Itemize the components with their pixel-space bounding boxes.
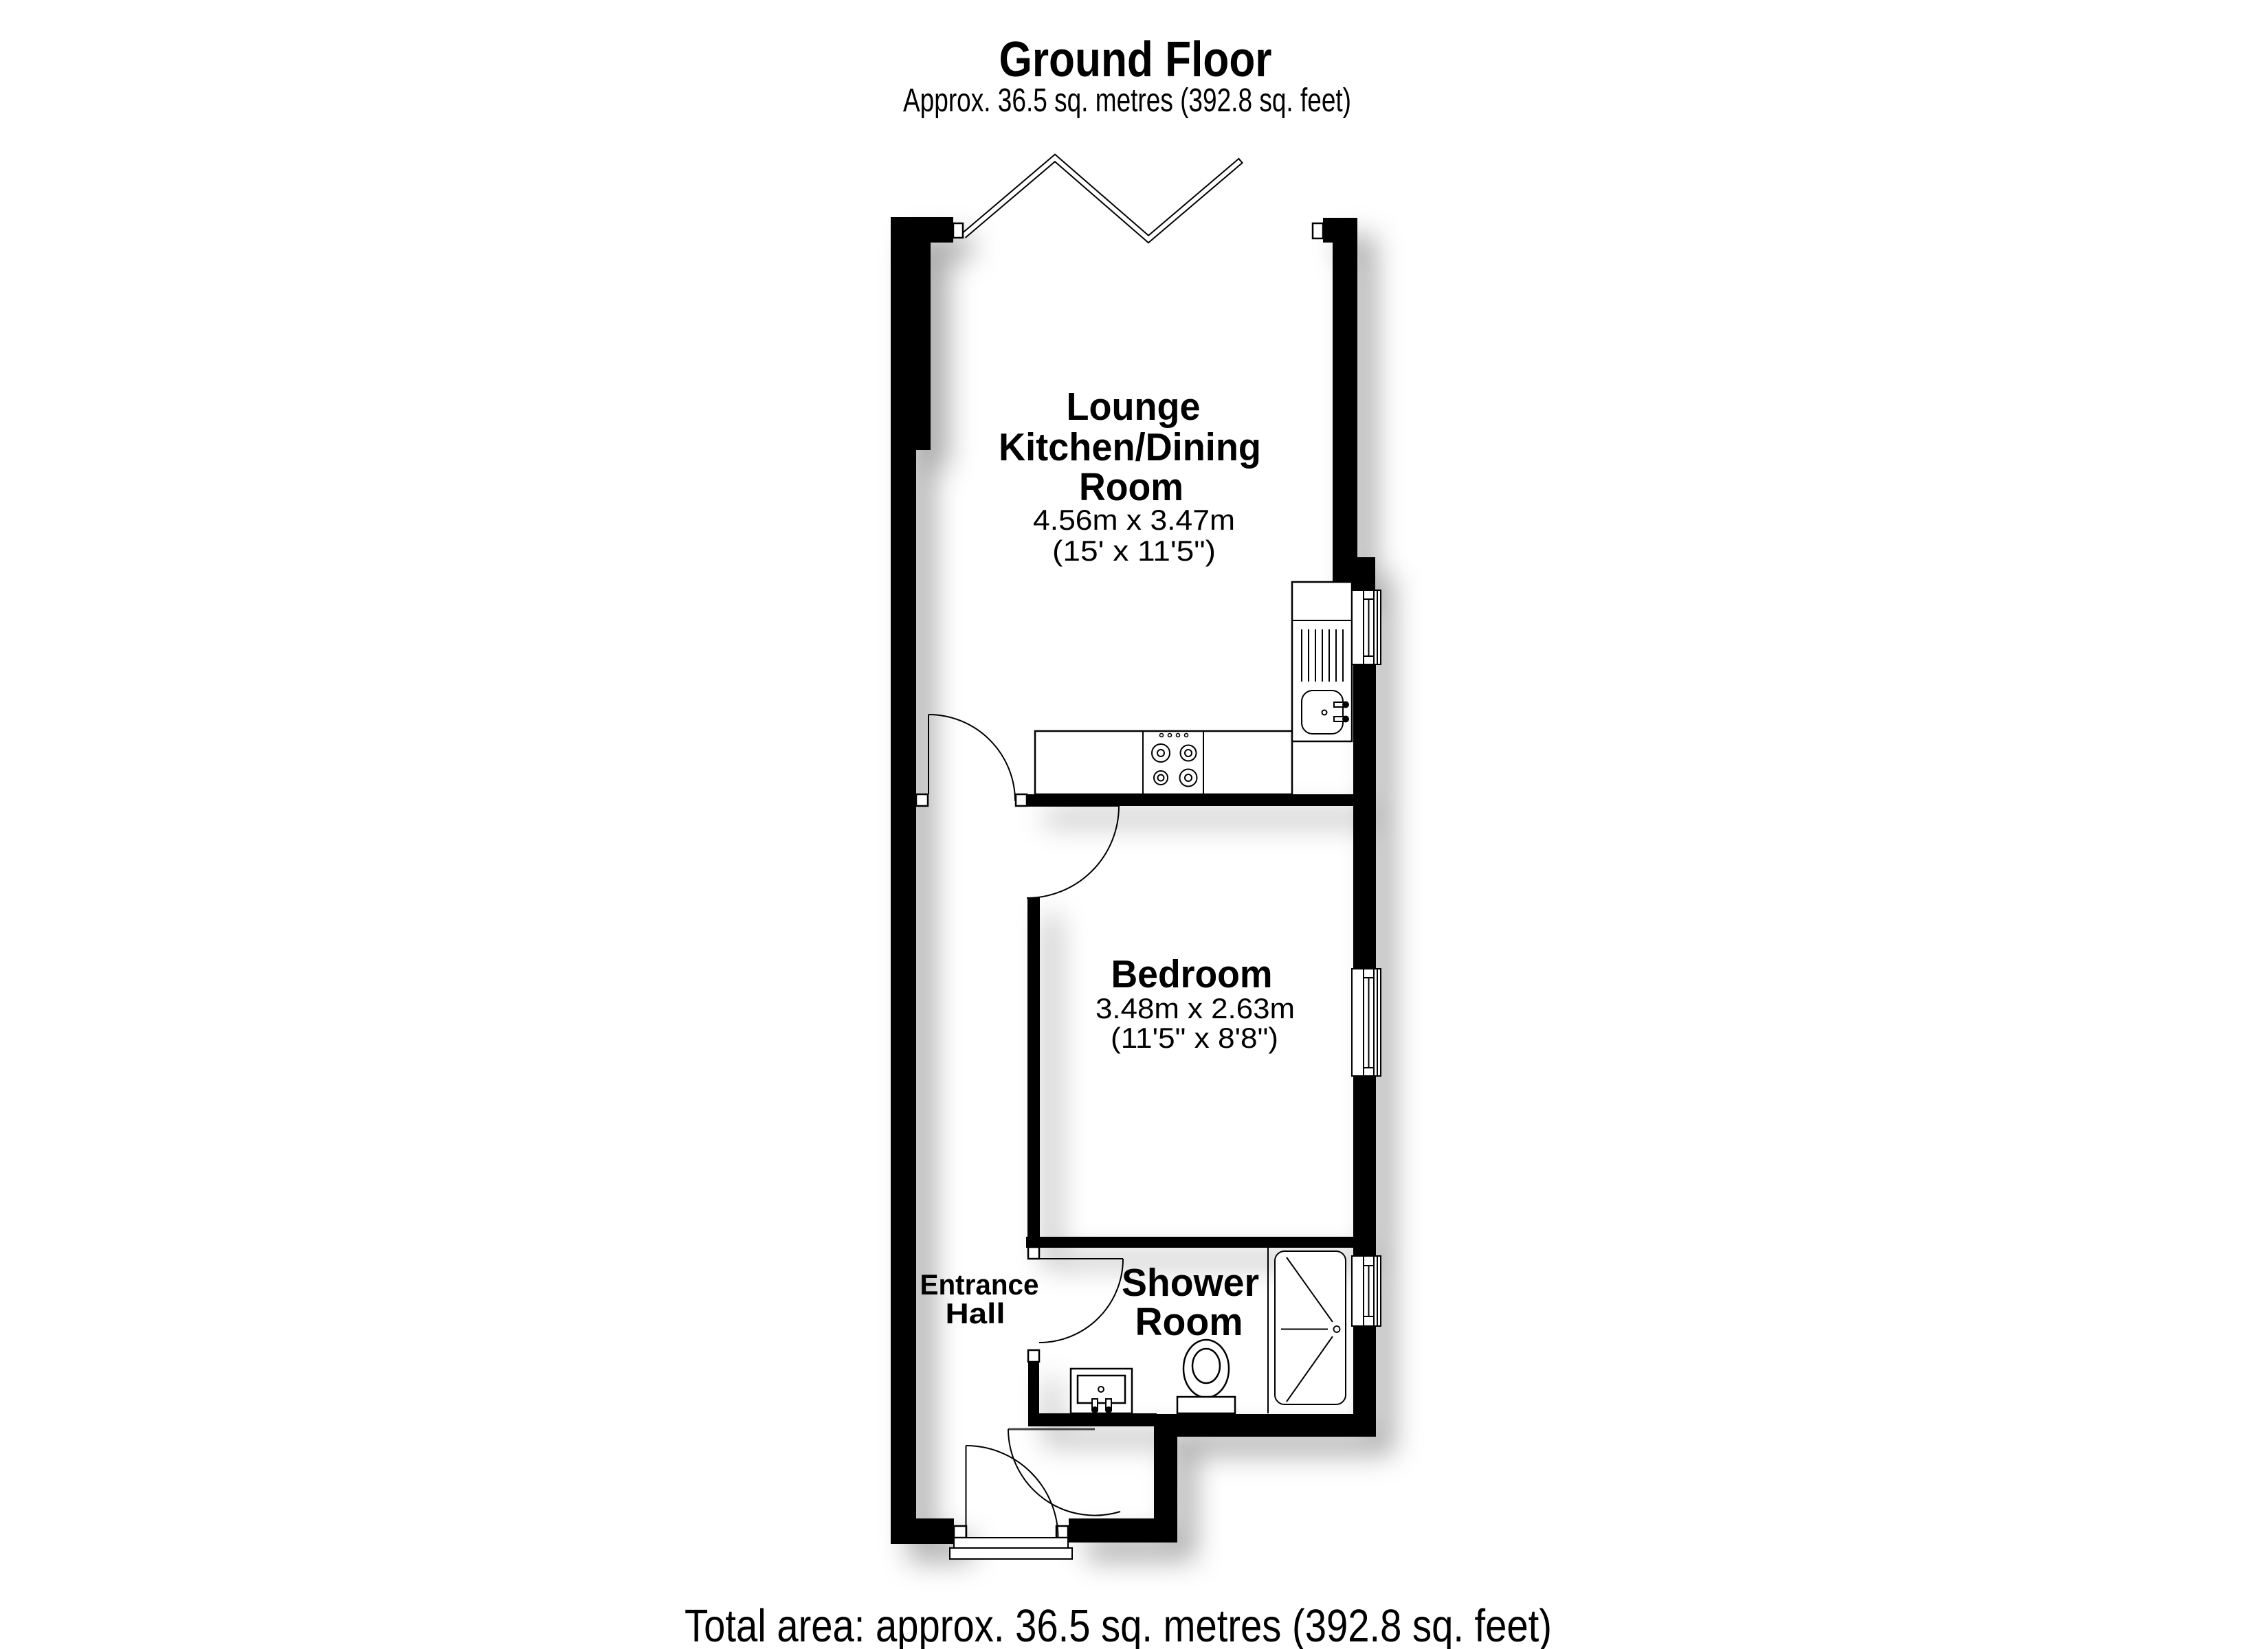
svg-text:(15' x 11'5"): (15' x 11'5"): [1052, 535, 1216, 567]
svg-text:Room: Room: [1135, 1300, 1243, 1344]
svg-text:Room: Room: [1079, 465, 1183, 509]
svg-text:4.56m x 3.47m: 4.56m x 3.47m: [1033, 504, 1235, 536]
svg-text:Total area: approx. 36.5 sq. m: Total area: approx. 36.5 sq. metres (392…: [685, 1600, 1552, 1649]
svg-text:(11'5" x 8'8"): (11'5" x 8'8"): [1111, 1022, 1278, 1054]
svg-text:Hall: Hall: [946, 1297, 1005, 1330]
svg-text:Approx. 36.5 sq. metres (392.8: Approx. 36.5 sq. metres (392.8 sq. feet): [903, 82, 1351, 119]
svg-text:Kitchen/Dining: Kitchen/Dining: [999, 425, 1261, 469]
svg-text:Lounge: Lounge: [1067, 385, 1201, 429]
svg-text:Shower: Shower: [1122, 1261, 1259, 1305]
svg-text:Entrance: Entrance: [920, 1268, 1039, 1301]
svg-text:3.48m x 2.63m: 3.48m x 2.63m: [1096, 992, 1295, 1024]
svg-text:Ground Floor: Ground Floor: [999, 32, 1272, 87]
svg-text:Bedroom: Bedroom: [1111, 952, 1273, 996]
